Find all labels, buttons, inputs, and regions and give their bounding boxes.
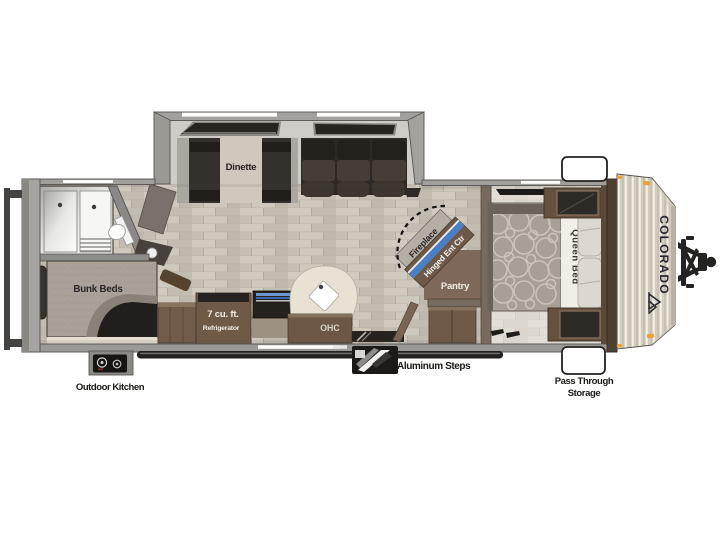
svg-text:Storage: Storage — [568, 388, 601, 399]
svg-text:7 cu. ft.: 7 cu. ft. — [207, 309, 238, 320]
svg-text:OHC: OHC — [320, 323, 340, 333]
svg-text:Aluminum Steps: Aluminum Steps — [397, 361, 471, 372]
svg-text:Outdoor Kitchen: Outdoor Kitchen — [76, 382, 145, 393]
svg-text:Pass Through: Pass Through — [555, 376, 614, 387]
svg-text:Refrigerator: Refrigerator — [203, 325, 240, 332]
svg-text:COLORADO: COLORADO — [657, 215, 671, 295]
svg-text:Pantry: Pantry — [441, 281, 470, 292]
svg-text:Bunk Beds: Bunk Beds — [73, 284, 123, 295]
svg-text:Dinette: Dinette — [226, 162, 257, 173]
